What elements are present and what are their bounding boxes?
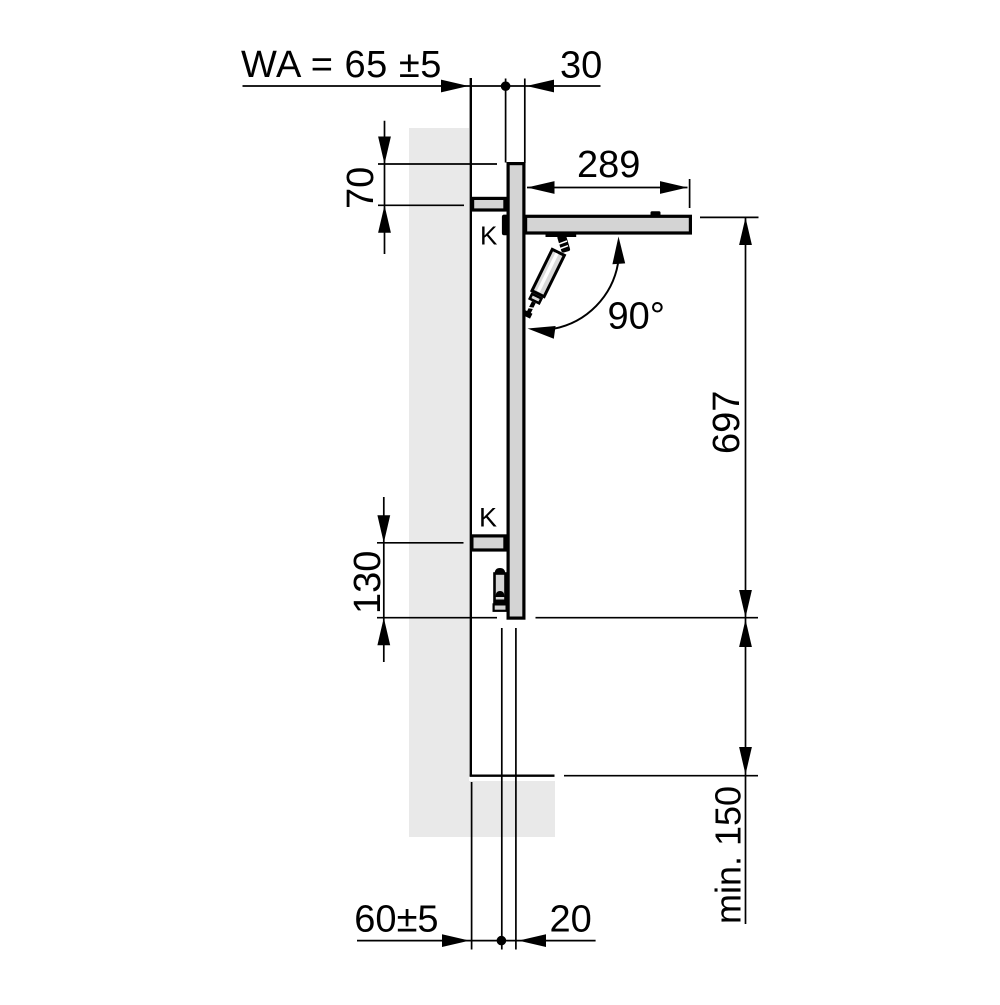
svg-text:WA = 65 ±5: WA = 65 ±5	[241, 44, 442, 86]
svg-text:min. 150: min. 150	[708, 786, 749, 924]
svg-text:130: 130	[347, 551, 389, 614]
svg-text:70: 70	[340, 167, 382, 209]
svg-text:K: K	[479, 503, 497, 533]
svg-text:289: 289	[577, 144, 640, 186]
svg-text:60±5: 60±5	[354, 898, 438, 940]
svg-text:30: 30	[560, 45, 602, 87]
svg-text:90°: 90°	[608, 296, 665, 338]
svg-text:697: 697	[706, 391, 748, 454]
svg-text:20: 20	[550, 898, 592, 940]
svg-text:K: K	[480, 221, 498, 251]
